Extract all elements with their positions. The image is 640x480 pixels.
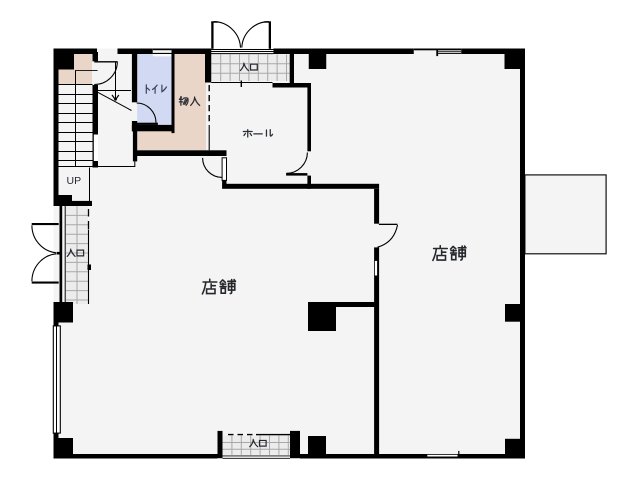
svg-text:UP: UP — [67, 175, 82, 187]
